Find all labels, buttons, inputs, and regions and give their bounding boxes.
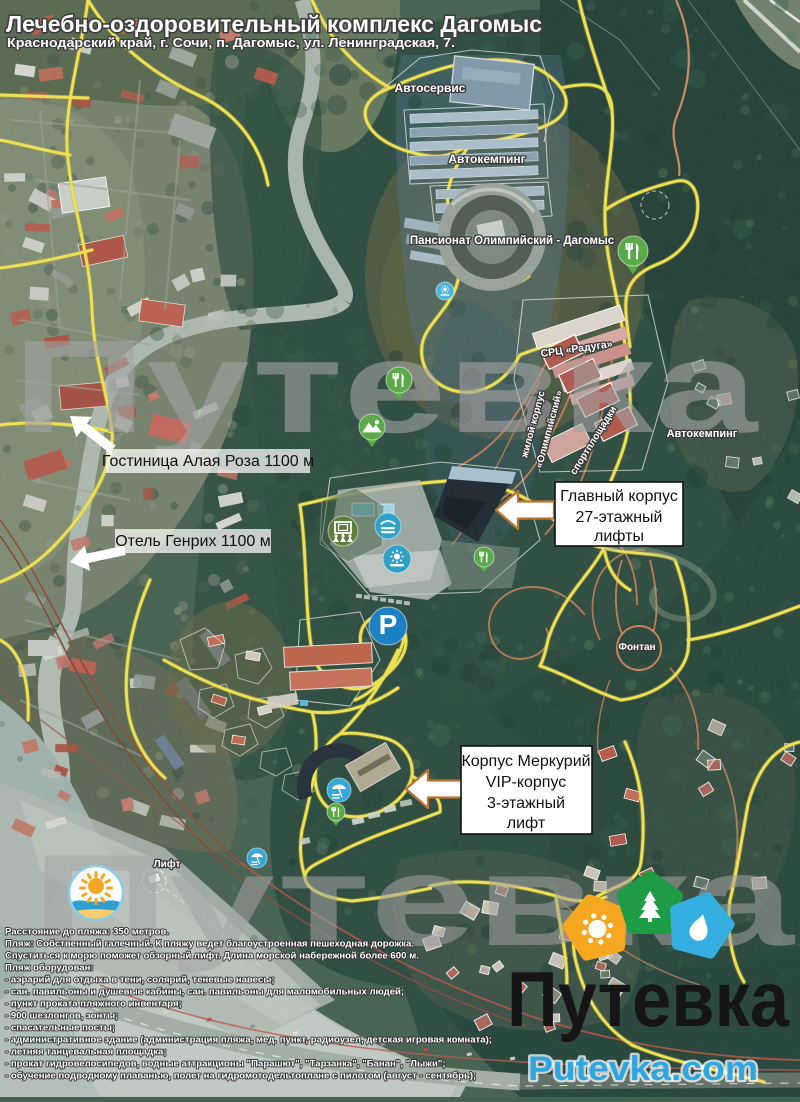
svg-text:3-этажный: 3-этажный <box>487 795 565 812</box>
svg-text:Путевка: Путевка <box>13 313 760 460</box>
svg-text:Краснодарский край, г. Сочи, п: Краснодарский край, г. Сочи, п. Дагомыс,… <box>7 36 455 50</box>
svg-text:Корпус Меркурий: Корпус Меркурий <box>461 753 590 770</box>
svg-text:Расстояние до пляжа: 350 метро: Расстояние до пляжа: 350 метров. <box>5 927 169 938</box>
svg-text:- прокат гидровелосипедов, вод: - прокат гидровелосипедов, водные аттрак… <box>5 1059 446 1070</box>
svg-text:- 900 шезлонгов, зонты;: - 900 шезлонгов, зонты; <box>5 1011 118 1022</box>
svg-text:- спасательные посты;: - спасательные посты; <box>5 1023 115 1034</box>
svg-text:лифт: лифт <box>507 815 546 832</box>
svg-text:Putevka.com: Putevka.com <box>528 1050 758 1088</box>
svg-text:- летняя танцевальная площадка: - летняя танцевальная площадка; <box>5 1047 167 1058</box>
svg-text:Пляж: Собственный галечный. К: Пляж: Собственный галечный. К пляжу веде… <box>5 939 414 950</box>
svg-text:Лифт: Лифт <box>154 858 181 870</box>
svg-text:лифты: лифты <box>594 528 644 545</box>
svg-text:27-этажный: 27-этажный <box>576 509 663 526</box>
svg-text:Автокемпинг: Автокемпинг <box>667 428 738 440</box>
svg-text:Главный корпус: Главный корпус <box>560 488 678 505</box>
svg-text:Автокемпинг: Автокемпинг <box>448 152 525 166</box>
svg-text:Гостиница Алая Роза 1100 м: Гостиница Алая Роза 1100 м <box>102 453 314 470</box>
svg-text:P: P <box>379 609 398 640</box>
svg-text:Спуститься к морю поможет обзо: Спуститься к морю поможет обзорный лифт.… <box>5 951 419 962</box>
svg-text:- обучение подводному плаванью: - обучение подводному плаванью, полет на… <box>5 1071 476 1082</box>
svg-text:Автосервис: Автосервис <box>395 81 466 95</box>
svg-text:Фонтан: Фонтан <box>618 642 655 653</box>
svg-text:Пляж оборудован:: Пляж оборудован: <box>5 963 94 974</box>
svg-text:- аэрарий для отдыха в тени, с: - аэрарий для отдыха в тени, солярий, те… <box>5 975 275 986</box>
svg-text:Пансионат Олимпийский - Дагомы: Пансионат Олимпийский - Дагомыс <box>410 235 615 247</box>
svg-text:- сан. павильоны и душевые каб: - сан. павильоны и душевые кабины, сан. … <box>5 987 404 998</box>
svg-text:Отель Генрих 1100 м: Отель Генрих 1100 м <box>115 533 271 550</box>
svg-text:Лечебно-оздоровительный компле: Лечебно-оздоровительный комплекс Дагомыс <box>6 11 542 37</box>
svg-text:Путевка: Путевка <box>507 955 790 1043</box>
svg-text:VIP-корпус: VIP-корпус <box>486 774 567 791</box>
svg-text:- административное здание (адм: - административное здание (администрация… <box>5 1035 492 1046</box>
svg-text:- пункт проката пляжного инвен: - пункт проката пляжного инвентаря; <box>5 999 182 1010</box>
